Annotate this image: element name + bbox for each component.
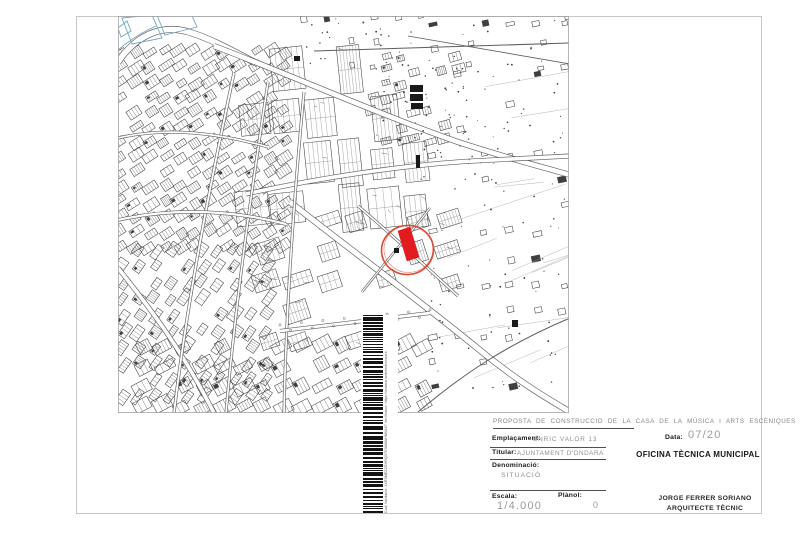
- date-value: 07/20: [688, 429, 722, 441]
- barcode-caption-line: Codi Validació: 4XR5MEZ2GHRQ37G9AMAHMVA9…: [384, 424, 388, 513]
- planol-label: Plànol:: [558, 492, 582, 499]
- planol-value: 0: [593, 500, 599, 510]
- titular-label: Titular:: [492, 449, 517, 456]
- office-name: OFICINA TÈCNICA MUNICIPAL: [633, 450, 763, 459]
- titleblock-rule: [493, 428, 634, 429]
- date-label: Data:: [665, 434, 683, 441]
- titular-value: AJUNTAMENT D'ONDARA: [517, 450, 604, 457]
- author-name: JORGE FERRER SORIANO: [635, 494, 775, 504]
- city-map: [118, 16, 569, 413]
- author-block: JORGE FERRER SORIANO ARQUITECTE TÈCNIC: [635, 494, 775, 514]
- titleblock-rule: [490, 459, 606, 460]
- barcode-caption-line: Verificació: https://ondara.sedelectroni…: [384, 351, 388, 423]
- escala-value: 1/4.000: [497, 500, 542, 512]
- validation-stamp: Codi Validació: 4XR5MEZ2GHRQ37G9AMAHMVA9…: [361, 315, 398, 513]
- titleblock-rule: [490, 447, 606, 448]
- titleblock-rule: [490, 490, 606, 491]
- denominacio-value: SITUACIÓ: [501, 472, 541, 479]
- drawing-sheet: { "page": {"width": 800, "height": 533, …: [0, 0, 800, 533]
- author-title: ARQUITECTE TÈCNIC: [635, 504, 775, 514]
- emplacament-value: ENRIC VALOR 13: [533, 436, 597, 443]
- barcode-caption: Codi Validació: 4XR5MEZ2GHRQ37G9AMAHMVA9…: [384, 351, 397, 513]
- denominacio-label: Denominació:: [492, 462, 539, 469]
- project-title: PROPOSTA DE CONSTRUCCIO DE LA CASA DE LA…: [493, 418, 796, 425]
- escala-label: Escala:: [492, 493, 517, 500]
